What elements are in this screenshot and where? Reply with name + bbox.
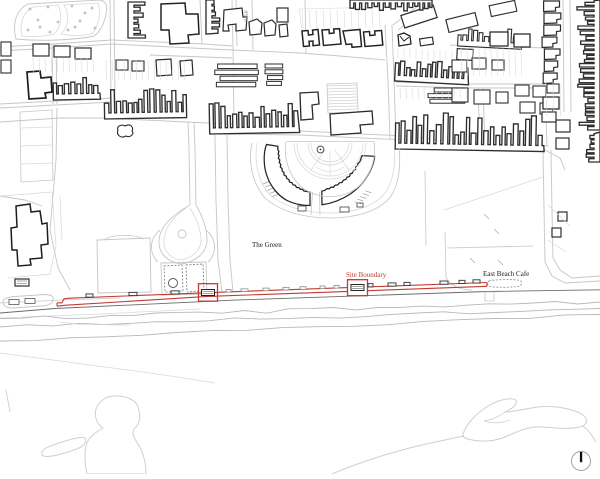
svg-text:The Green: The Green [252,241,282,249]
svg-text:East Beach Cafe: East Beach Cafe [483,270,529,278]
svg-text:Site Boundary: Site Boundary [346,271,387,279]
